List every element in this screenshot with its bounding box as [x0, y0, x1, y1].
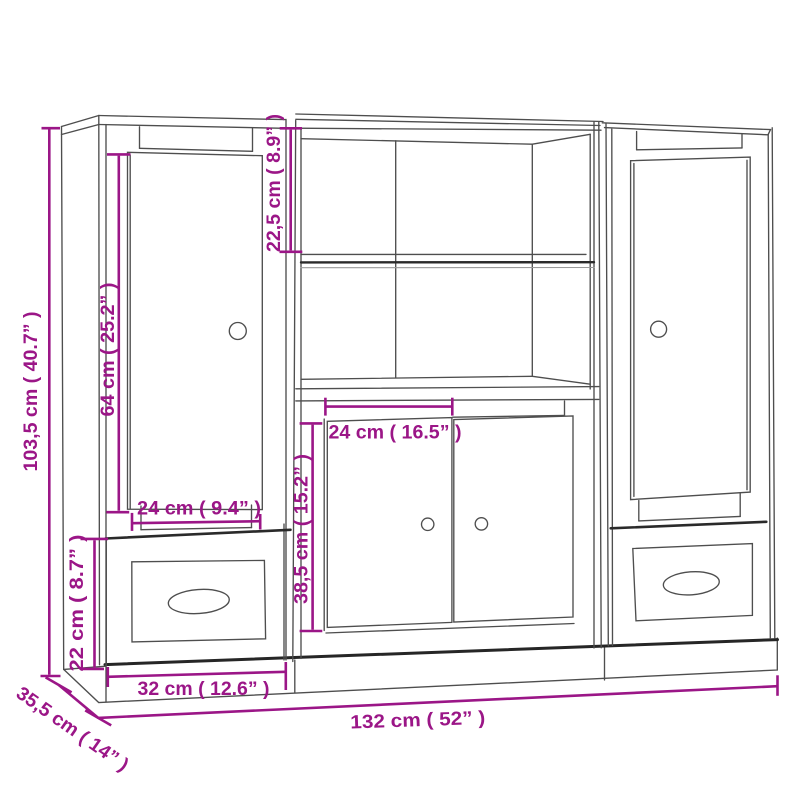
svg-text:24 cm ( 16.5” ): 24 cm ( 16.5” ): [329, 423, 462, 444]
svg-text:32 cm ( 12.6” ): 32 cm ( 12.6” ): [138, 679, 270, 700]
svg-text:22,5 cm ( 8.9” ): 22,5 cm ( 8.9” ): [264, 114, 285, 252]
svg-text:64 cm ( 25.2” ): 64 cm ( 25.2” ): [98, 283, 119, 417]
svg-text:24 cm ( 9.4” ): 24 cm ( 9.4” ): [137, 499, 261, 520]
svg-text:38,5 cm ( 15.2” ): 38,5 cm ( 15.2” ): [292, 454, 313, 604]
svg-text:103,5 cm ( 40.7” ): 103,5 cm ( 40.7” ): [21, 312, 42, 472]
svg-text:22 cm ( 8.7” ): 22 cm ( 8.7” ): [67, 535, 88, 672]
